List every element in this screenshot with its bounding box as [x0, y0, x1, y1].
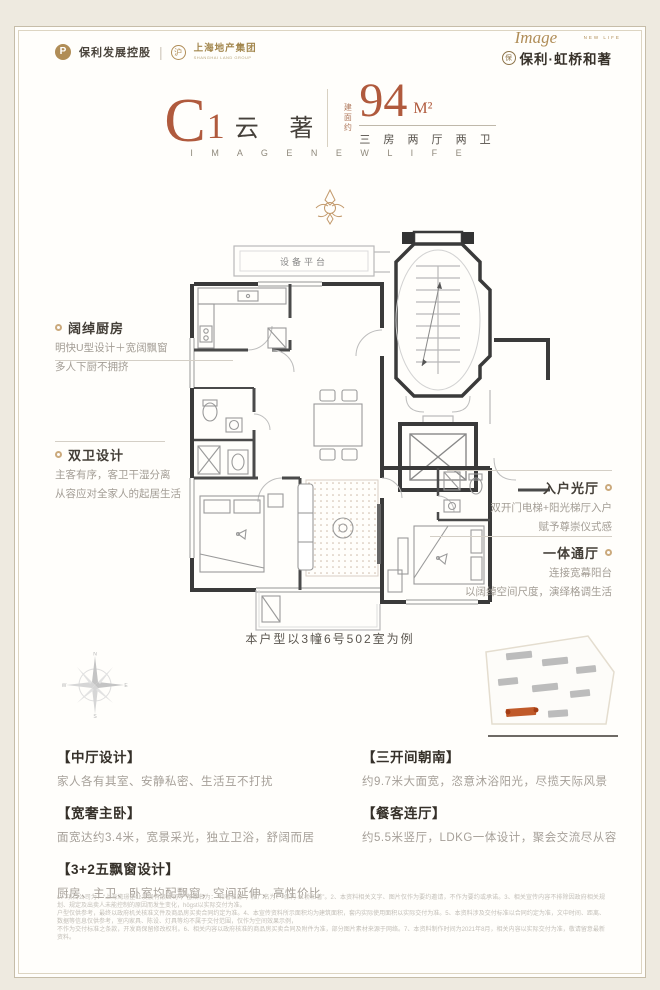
callout-entry-title: 入户光厅 — [543, 478, 599, 497]
balcony — [256, 590, 380, 630]
feature-title: 【中厅设计】 — [57, 746, 347, 766]
callout-entry-line2: 赋予尊崇仪式感 — [422, 519, 612, 535]
features-column-right: 【三开间朝南】 约9.7米大面宽，恣意沐浴阳光，尽揽天际风景 【餐客连厅】 约5… — [362, 746, 622, 858]
stair-core — [396, 232, 490, 412]
callout-entry-hall: 入户光厅 双开门电梯+阳光梯厅入户 赋予尊崇仪式感 — [422, 478, 612, 535]
plan-name: 云 著 — [235, 108, 326, 143]
area-block: 建面约 94 M² 三 房 两 厅 两 卫 — [342, 82, 495, 147]
disclaimer-line: 不作为交付标准之条款，开发商保留修改权利。6、相关内容以政府核准的商品房买卖合同… — [57, 926, 605, 942]
equipment-platform: 设备平台 — [234, 246, 390, 276]
callout-open-hall: 一体通厅 连接宽幕阳台 以阔绰空间尺度，演绎格调生活 — [422, 543, 612, 600]
area-unit: M² — [413, 100, 432, 118]
callout-kitchen-title: 阔绰厨房 — [68, 318, 124, 337]
feature-title: 【宽奢主卧】 — [57, 802, 347, 822]
svg-text:S: S — [93, 714, 97, 718]
lotus-ornament-icon — [312, 188, 348, 231]
leader-line-hall — [430, 536, 612, 537]
area-prefix: 建面约 — [342, 103, 353, 133]
brand-primary-label: 保利发展控股 — [79, 44, 151, 60]
callout-dot-icon — [605, 549, 612, 556]
brand-separator: | — [159, 44, 163, 60]
feature-item: 【餐客连厅】 约5.5米竖厅，LDKG一体设计，聚会交流尽从容 — [362, 802, 622, 845]
brand-secondary: 上海地产集团 SHANGHAI LAND GROUP — [194, 44, 257, 60]
feature-item: 【三开间朝南】 约9.7米大面宽，恣意沐浴阳光，尽揽天际风景 — [362, 746, 622, 789]
feature-desc: 家人各有其室、安静私密、生活互不打扰 — [57, 773, 347, 789]
project-seal-icon: 保 — [502, 51, 516, 65]
living-dining — [298, 390, 381, 576]
callout-open-hall-line1: 连接宽幕阳台 — [422, 565, 612, 581]
callout-dot-icon — [55, 324, 62, 331]
callout-kitchen-line1: 明快U型设计＋宽阔飘窗 — [55, 340, 245, 356]
legal-disclaimer: 1、项目公司为：“上海湾璟企业发展有限公司”，备案名为：“和著名邸”，推广名为：… — [57, 894, 605, 942]
feature-desc: 约5.5米竖厅，LDKG一体设计，聚会交流尽从容 — [362, 829, 622, 845]
header-brand-left: P 保利发展控股 | 沪 上海地产集团 SHANGHAI LAND GROUP — [55, 44, 257, 60]
slogan: I M A G E N E W L I F E — [0, 148, 660, 158]
feature-item: 【宽奢主卧】 面宽达约3.4米，宽景采光，独立卫浴，舒阔而居 — [57, 802, 347, 845]
callout-bathrooms-line1: 主客有序，客卫干湿分离 — [55, 467, 245, 483]
image-script-logo: Image — [515, 28, 557, 47]
svg-text:E: E — [124, 683, 128, 689]
disclaimer-line: 1、项目公司为：“上海湾璟企业发展有限公司”，备案名为：“和著名邸”，推广名为：… — [57, 894, 605, 910]
feature-desc: 面宽达约3.4米，宽景采光，独立卫浴，舒阔而居 — [57, 829, 347, 845]
feature-title: 【餐客连厅】 — [362, 802, 622, 822]
callout-entry-line1: 双开门电梯+阳光梯厅入户 — [422, 500, 612, 516]
callout-open-hall-line2: 以阔绰空间尺度，演绎格调生活 — [422, 584, 612, 600]
plan-letter: C — [164, 95, 205, 148]
area-value: 94 — [359, 82, 407, 120]
leader-line-bath — [55, 441, 165, 442]
callout-kitchen-line2: 多人下厨不拥挤 — [55, 359, 245, 375]
title-divider — [327, 89, 328, 147]
brand-secondary-label: 上海地产集团 — [194, 44, 257, 54]
rooms-label: 三 房 两 厅 两 卫 — [359, 131, 495, 147]
new-life-sublabel: NEW LIFE — [584, 35, 621, 40]
callout-dot-icon — [605, 484, 612, 491]
feature-title: 【3+2五飘窗设计】 — [57, 858, 347, 878]
platform-label: 设备平台 — [280, 256, 328, 267]
callout-bathrooms-line2: 从容应对全家人的起居生活 — [55, 486, 245, 502]
callout-bathrooms-title: 双卫设计 — [68, 445, 124, 464]
project-name: 保利·虹桥和著 — [520, 48, 613, 68]
brand-secondary-sublabel: SHANGHAI LAND GROUP — [194, 56, 257, 60]
callout-bathrooms: 双卫设计 主客有序，客卫干湿分离 从容应对全家人的起居生活 — [55, 445, 245, 502]
svg-text:W: W — [62, 683, 67, 689]
feature-item: 【中厅设计】 家人各有其室、安静私密、生活互不打扰 — [57, 746, 347, 789]
feature-desc: 约9.7米大面宽，恣意沐浴阳光，尽揽天际风景 — [362, 773, 622, 789]
leader-line-entry — [447, 470, 612, 471]
feature-title: 【三开间朝南】 — [362, 746, 622, 766]
compass-icon: N W E S — [62, 652, 128, 723]
unit-title: C 1 云 著 建面约 94 M² 三 房 两 厅 两 卫 — [0, 82, 660, 147]
site-map-divider — [488, 735, 618, 737]
callout-dot-icon — [55, 451, 62, 458]
lobby-walls — [490, 340, 550, 490]
features-column-left: 【中厅设计】 家人各有其室、安静私密、生活互不打扰 【宽奢主卧】 面宽达约3.4… — [57, 746, 347, 914]
floorplan-poster: P 保利发展控股 | 沪 上海地产集团 SHANGHAI LAND GROUP … — [0, 0, 660, 990]
shanghai-land-logo-icon: 沪 — [171, 45, 186, 60]
site-map — [472, 632, 622, 737]
poly-logo-icon: P — [55, 44, 71, 60]
callout-open-hall-title: 一体通厅 — [543, 543, 599, 562]
callout-kitchen: 阔绰厨房 明快U型设计＋宽阔飘窗 多人下厨不拥挤 — [55, 318, 245, 375]
header-brand-right: Image NEW LIFE 保 保利·虹桥和著 — [502, 28, 613, 68]
plan-number: 1 — [207, 105, 225, 147]
svg-text:N: N — [93, 652, 97, 658]
bedroom-2 — [200, 494, 283, 572]
disclaimer-line: 户型仅供参考，最终以政府机关核准文件及商品房买卖合同约定为准。4、本宣传资料所示… — [57, 910, 605, 926]
